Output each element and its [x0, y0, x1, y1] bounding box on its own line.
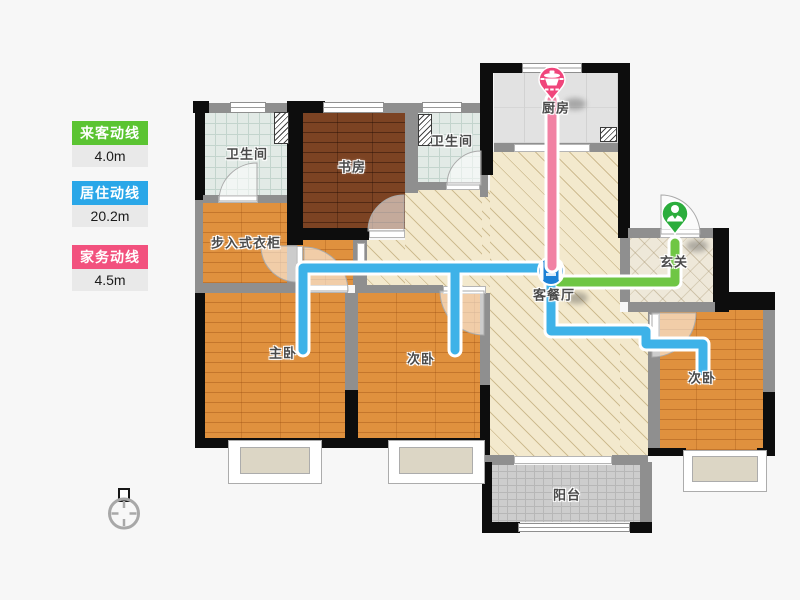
guest-route-outline [559, 243, 675, 282]
marker-shadows [564, 98, 708, 304]
room-label-closet: 步入式衣柜 [211, 233, 281, 252]
room-label-master: 主卧 [269, 343, 297, 362]
compass-icon [110, 489, 139, 528]
room-label-living-dining: 客餐厅 [533, 285, 575, 304]
kitchen-pin[interactable] [539, 67, 565, 100]
legend-guest-route[interactable]: 来客动线 [72, 121, 148, 145]
room-label-kitchen: 厨房 [542, 98, 570, 117]
room-label-foyer: 玄关 [660, 252, 688, 271]
legend-living-route-length: 20.2m [72, 205, 148, 227]
room-label-balcony: 阳台 [553, 485, 581, 504]
legend-chore-route[interactable]: 家务动线 [72, 245, 148, 269]
room-label-study: 书房 [338, 157, 366, 176]
legend-living-route[interactable]: 居住动线 [72, 181, 148, 205]
room-label-bedroom-2: 次卧 [407, 349, 435, 368]
room-label-bathroom-1: 卫生间 [226, 144, 268, 163]
room-label-bathroom-2: 卫生间 [431, 131, 473, 150]
route-overlay [0, 0, 800, 600]
floorplan-canvas: 卫生间 书房 卫生间 厨房 步入式衣柜 玄关 客餐厅 主卧 次卧 次卧 阳台 [0, 0, 800, 600]
legend-guest-route-length: 4.0m [72, 145, 148, 167]
room-label-bedroom-3: 次卧 [688, 368, 716, 387]
legend-chore-route-length: 4.5m [72, 269, 148, 291]
